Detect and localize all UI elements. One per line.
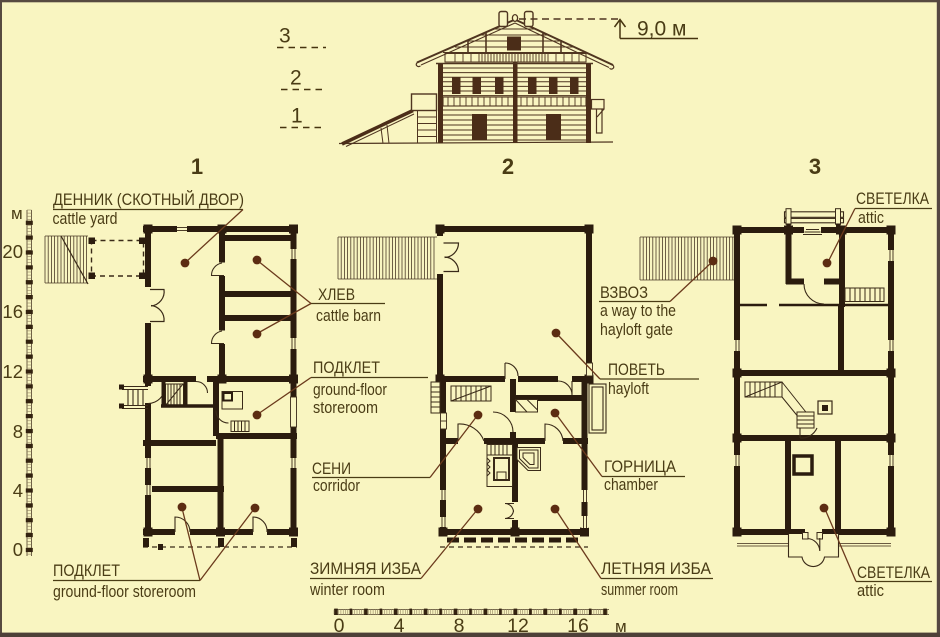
- svg-text:1: 1: [191, 154, 203, 179]
- svg-text:ЛЕТНЯЯ ИЗБА: ЛЕТНЯЯ ИЗБА: [601, 559, 712, 578]
- svg-text:hayloft: hayloft: [608, 379, 649, 398]
- svg-text:20: 20: [2, 241, 23, 262]
- svg-text:м: м: [615, 617, 627, 636]
- svg-text:storeroom: storeroom: [313, 398, 378, 417]
- svg-text:attic: attic: [858, 208, 884, 227]
- svg-text:cattle yard: cattle yard: [53, 209, 118, 228]
- svg-text:attic: attic: [857, 581, 884, 600]
- svg-text:summer room: summer room: [601, 580, 678, 599]
- svg-text:cattle barn: cattle barn: [316, 306, 381, 325]
- svg-text:12: 12: [2, 361, 23, 382]
- svg-text:4: 4: [13, 480, 23, 501]
- svg-text:ПОДКЛЕТ: ПОДКЛЕТ: [53, 561, 120, 580]
- svg-text:a way to the: a way to the: [600, 301, 676, 320]
- svg-text:0: 0: [13, 539, 23, 560]
- svg-text:winter room: winter room: [309, 580, 385, 599]
- svg-text:16: 16: [567, 615, 589, 637]
- svg-text:ГОРНИЦА: ГОРНИЦА: [604, 457, 677, 476]
- svg-text:2: 2: [502, 154, 514, 179]
- svg-text:8: 8: [13, 421, 23, 442]
- svg-text:12: 12: [507, 615, 529, 637]
- svg-text:ПОДКЛЕТ: ПОДКЛЕТ: [313, 358, 380, 377]
- svg-text:corridor: corridor: [313, 476, 360, 495]
- svg-text:ХЛЕВ: ХЛЕВ: [318, 285, 355, 304]
- svg-text:8: 8: [454, 615, 465, 637]
- svg-text:ground-floor storeroom: ground-floor storeroom: [53, 582, 196, 601]
- svg-text:ДЕННИК (СКОТНЫЙ ДВОР): ДЕННИК (СКОТНЫЙ ДВОР): [53, 190, 244, 209]
- svg-text:3: 3: [279, 25, 291, 48]
- svg-text:3: 3: [809, 154, 821, 179]
- svg-text:4: 4: [394, 615, 405, 637]
- svg-text:СВЕТЕЛКА: СВЕТЕЛКА: [857, 563, 931, 582]
- svg-text:ЗИМНЯЯ ИЗБА: ЗИМНЯЯ ИЗБА: [310, 559, 422, 578]
- svg-text:ground-floor: ground-floor: [313, 380, 387, 399]
- svg-text:9,0 м: 9,0 м: [637, 18, 686, 41]
- svg-text:1: 1: [291, 105, 303, 128]
- svg-text:м: м: [11, 204, 23, 223]
- svg-text:ПОВЕТЬ: ПОВЕТЬ: [608, 360, 665, 379]
- svg-text:chamber: chamber: [604, 475, 658, 494]
- svg-text:ВЗВОЗ: ВЗВОЗ: [600, 283, 648, 302]
- svg-text:hayloft gate: hayloft gate: [600, 320, 673, 339]
- svg-text:2: 2: [290, 67, 302, 90]
- svg-text:СВЕТЕЛКА: СВЕТЕЛКА: [856, 189, 930, 208]
- svg-text:0: 0: [334, 615, 345, 637]
- svg-text:16: 16: [2, 301, 23, 322]
